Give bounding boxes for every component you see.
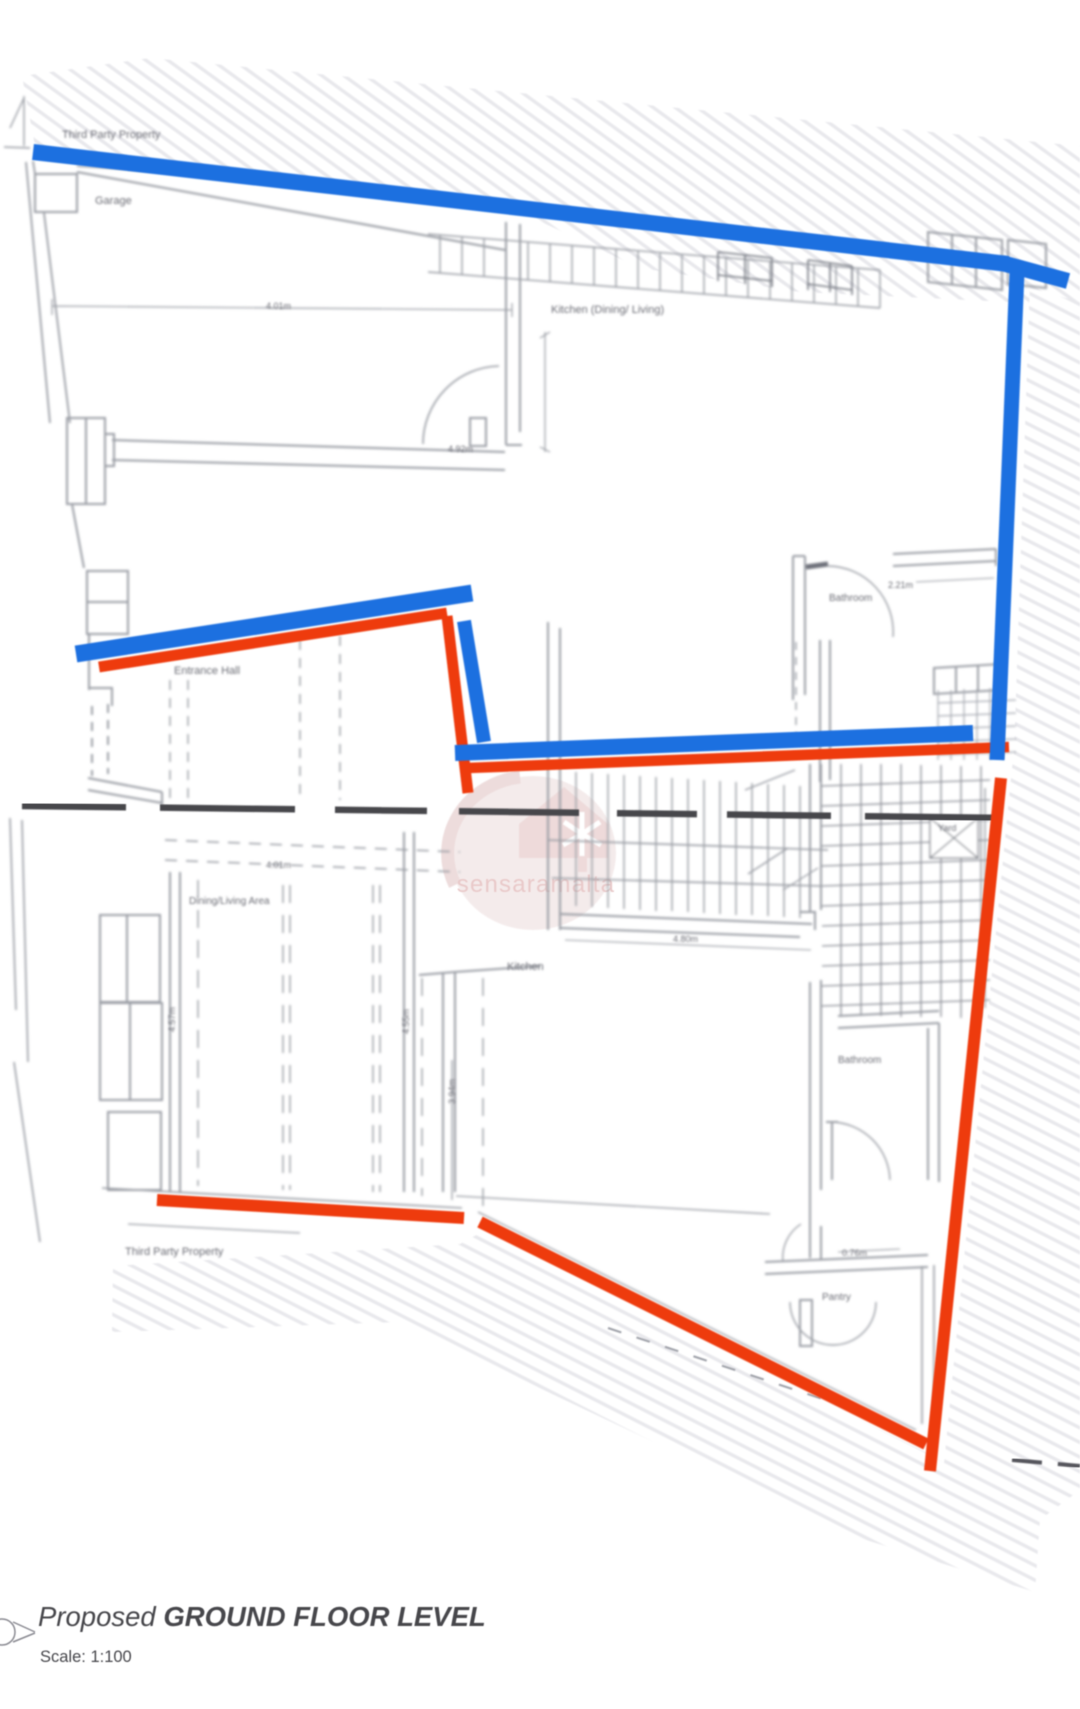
svg-text:Kitchen: Kitchen <box>507 961 544 973</box>
svg-text:4.80m: 4.80m <box>673 934 698 944</box>
svg-text:Pantry: Pantry <box>822 1292 851 1303</box>
svg-text:Bathroom: Bathroom <box>838 1055 881 1066</box>
svg-text:2.21m: 2.21m <box>888 580 913 590</box>
svg-text:Dining/Living Area: Dining/Living Area <box>189 896 270 907</box>
svg-text:Scale: 1:100: Scale: 1:100 <box>40 1648 132 1666</box>
svg-text:3.94m: 3.94m <box>447 1079 457 1104</box>
svg-text:0.76m: 0.76m <box>842 1248 867 1258</box>
svg-text:Yard: Yard <box>938 823 956 833</box>
svg-text:4.01m: 4.01m <box>266 860 291 870</box>
svg-text:Third Party Property: Third Party Property <box>62 129 161 141</box>
svg-text:Entrance Hall: Entrance Hall <box>174 665 240 677</box>
svg-text:Proposed GROUND FLOOR LEVEL: Proposed GROUND FLOOR LEVEL <box>38 1601 486 1632</box>
svg-text:4.01m: 4.01m <box>266 301 291 311</box>
svg-text:Garage: Garage <box>95 195 132 207</box>
svg-text:Third Party Property: Third Party Property <box>125 1246 224 1258</box>
svg-text:4.57m: 4.57m <box>167 1007 177 1032</box>
svg-text:Bathroom: Bathroom <box>829 593 872 604</box>
svg-text:4.55m: 4.55m <box>401 1009 411 1034</box>
svg-text:4.92m: 4.92m <box>448 444 473 454</box>
svg-text:Kitchen (Dining/ Living): Kitchen (Dining/ Living) <box>551 304 664 316</box>
